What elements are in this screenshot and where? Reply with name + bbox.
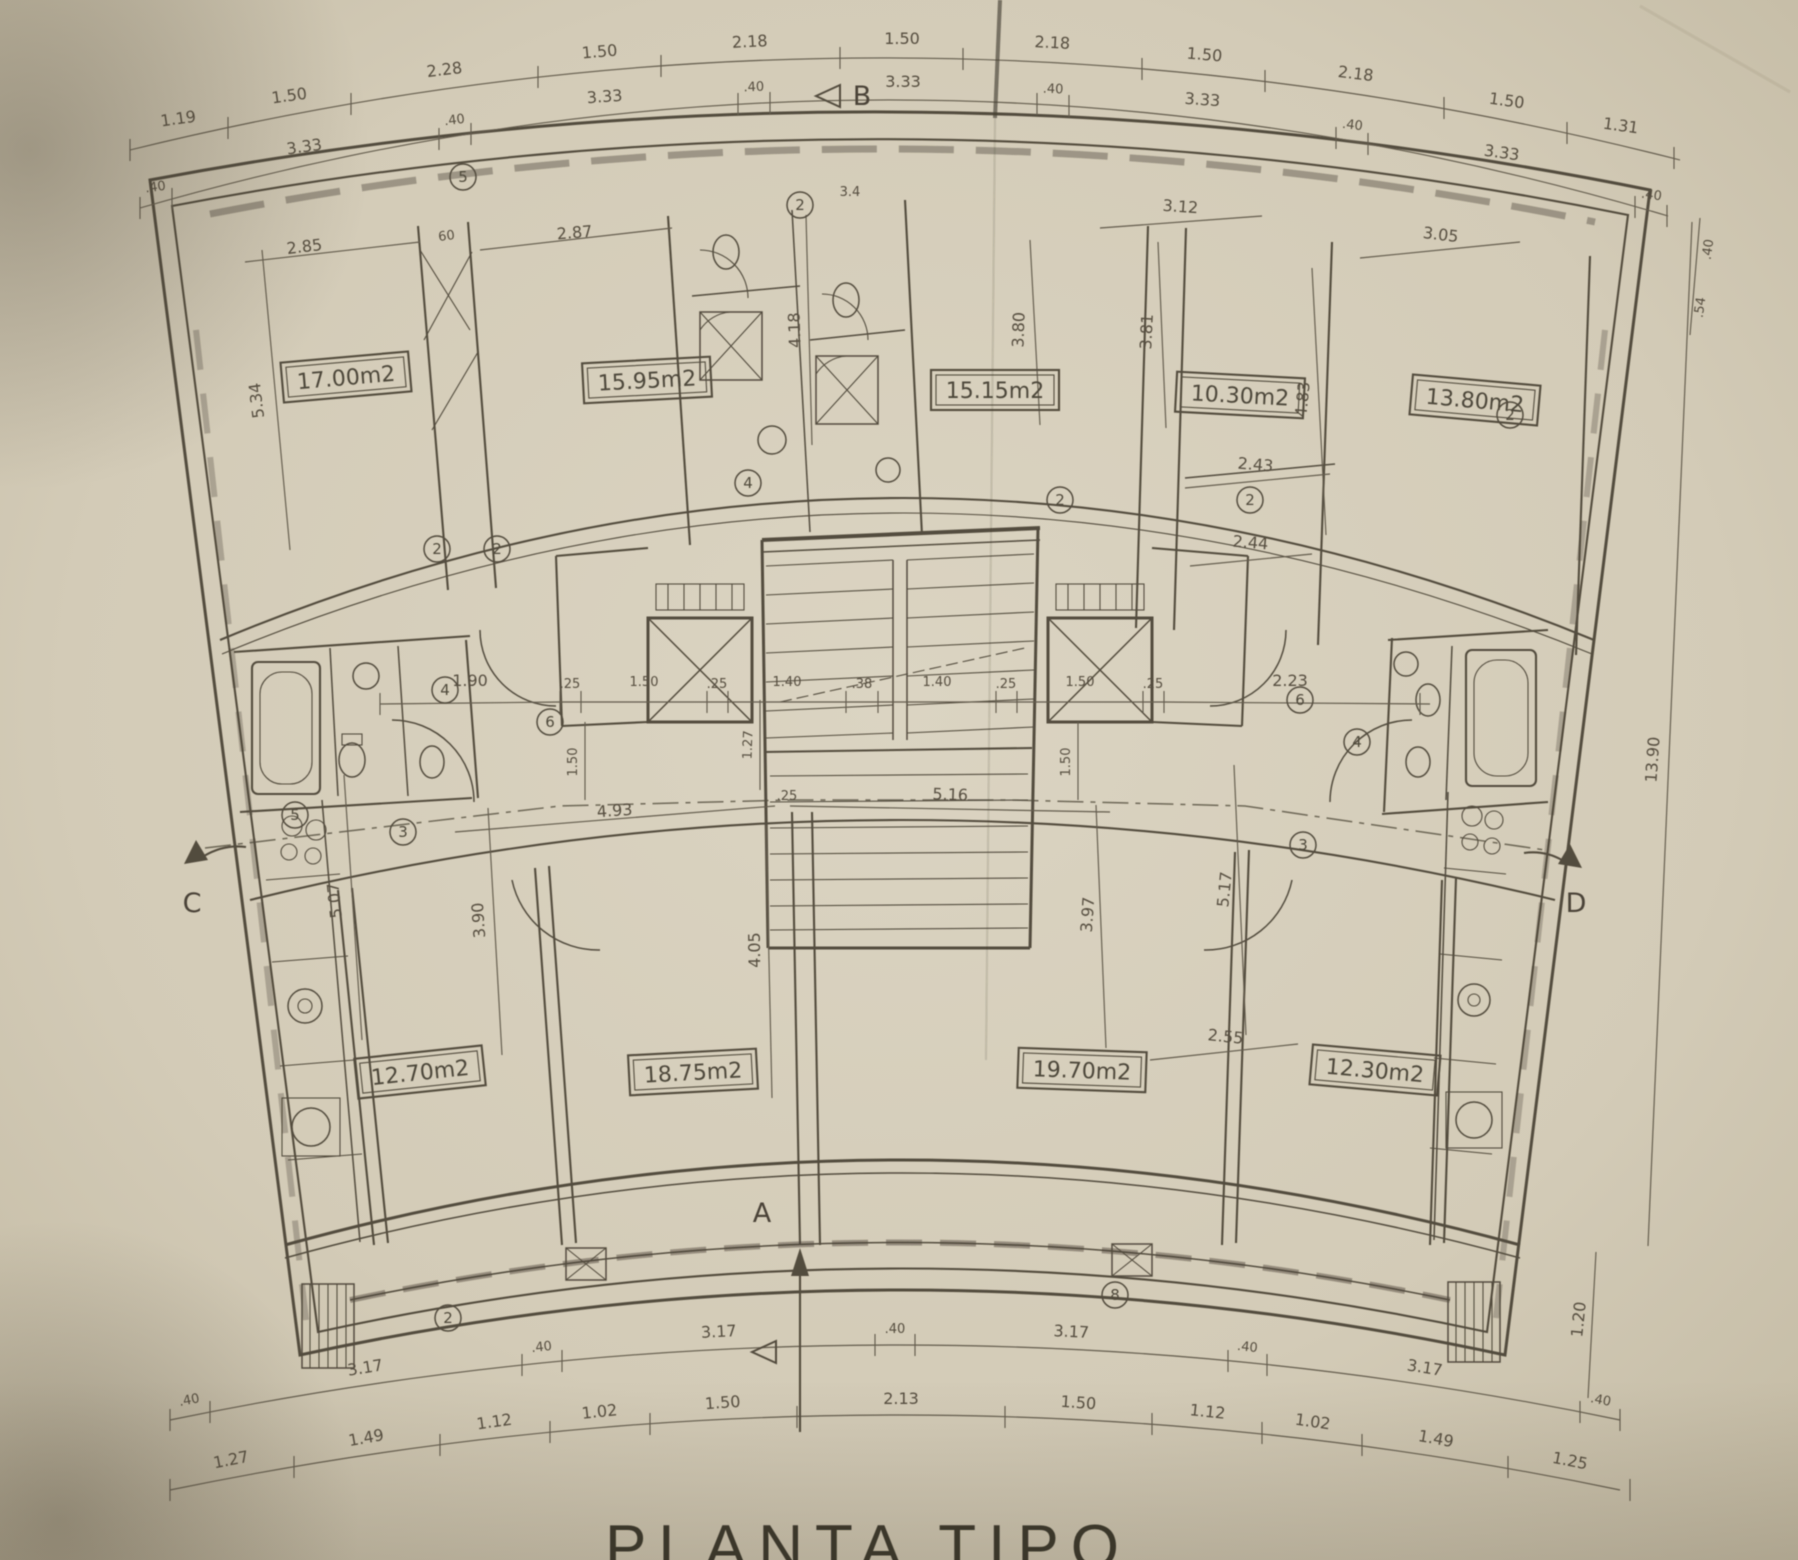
dim-label: 1.20 [1567,1301,1590,1338]
dim-label: 2.43 [1237,454,1274,476]
svg-text:4: 4 [743,474,753,492]
svg-text:2: 2 [1055,491,1065,509]
dim-label: 3.33 [1184,89,1221,110]
dim-label: 3.90 [468,902,489,939]
dim-label: 4.18 [784,312,804,348]
dim-label: 5.17 [1213,871,1236,908]
svg-text:2: 2 [432,540,442,558]
svg-text:5: 5 [290,806,300,824]
dim-label: 1.50 [1066,675,1095,690]
dim-label: 5.07 [323,882,346,919]
room-area-text: 19.70m2 [1032,1057,1131,1085]
dim-label: 3.33 [586,86,623,107]
dim-label: 1.50 [884,29,920,48]
axis-letter-a: A [753,1198,772,1229]
svg-text:6: 6 [545,713,555,731]
dim-label: .40 [531,1339,553,1356]
dim-label: 60 [437,228,455,245]
dim-label: .40 [1700,238,1718,261]
room-area-text: 18.75m2 [643,1058,743,1088]
scanned-floor-plan: 1.19 1.50 2.28 1.50 2.18 1.50 2.18 1.50 … [0,0,1798,1560]
dim-label: 2.87 [556,222,593,244]
dim-label: 2.44 [1232,532,1269,554]
svg-text:4: 4 [440,681,450,699]
svg-text:2: 2 [492,540,502,558]
dim-label: 3.33 [885,72,921,91]
dim-label: 1.50 [1186,44,1223,66]
room-area-text: 15.95m2 [597,366,697,396]
axis-letter-b: B [853,81,872,112]
dim-label: 2.13 [883,1389,919,1408]
dim-label: .25 [996,677,1017,692]
dim-label: 3.17 [1053,1321,1090,1342]
dim-label: 4.93 [596,800,633,821]
svg-text:5: 5 [458,168,468,186]
dim-label: 3.4 [840,185,861,200]
dim-label: 3.81 [1136,313,1157,350]
dim-label: 5.16 [932,784,968,804]
dim-label: .40 [1236,1339,1258,1356]
dim-label: .40 [443,112,465,129]
dim-label: .25 [1143,677,1164,692]
svg-text:3: 3 [1298,836,1308,854]
dim-label: 1.50 [581,41,618,63]
svg-text:2: 2 [1505,406,1515,424]
svg-text:8: 8 [1110,1286,1120,1304]
axis-letter-d: D [1566,888,1587,919]
floor-plan-canvas: 1.19 1.50 2.28 1.50 2.18 1.50 2.18 1.50 … [0,0,1798,1560]
dim-label: 1.27 [741,730,757,759]
dim-label: .40 [144,179,167,197]
dim-label: 3.97 [1077,896,1098,933]
dim-label: 1.02 [581,1400,618,1423]
dim-label: 1.50 [630,675,659,690]
dim-label: .38 [852,677,873,692]
dim-label: .40 [1043,82,1064,98]
svg-text:3: 3 [398,823,408,841]
svg-text:2: 2 [795,196,805,214]
dim-label: 1.50 [1060,1392,1097,1413]
dim-label: 1.50 [704,1392,741,1413]
dim-label: .25 [560,677,581,692]
svg-text:2: 2 [1245,491,1255,509]
dim-label: 1.50 [1059,748,1074,777]
dim-label: .25 [777,789,798,804]
dim-label: .54 [1692,296,1710,319]
dim-label: 2.55 [1207,1025,1244,1048]
dim-label: 13.90 [1641,736,1663,783]
dim-label: 4.05 [745,932,765,968]
dim-label: .40 [743,80,764,96]
dim-label: 1.40 [773,675,802,690]
svg-text:2: 2 [443,1309,453,1327]
dim-label: 1.50 [566,748,581,777]
dim-label: 2.18 [1034,32,1071,53]
dim-label: .40 [885,1322,906,1337]
dim-label: 2.18 [731,31,768,52]
dim-label: .40 [1640,187,1663,205]
svg-text:4: 4 [1352,733,1362,751]
dim-label: 3.12 [1162,196,1199,217]
dim-label: 3.17 [700,1321,737,1342]
dim-label: .40 [1341,117,1363,134]
room-area-text: 15.15m2 [946,379,1044,404]
axis-letter-c: C [183,888,202,919]
dim-label: .25 [707,677,728,692]
svg-text:6: 6 [1295,691,1305,709]
dim-label: 1.40 [923,675,952,690]
room-area-text: 10.30m2 [1190,381,1290,411]
dim-label: 3.80 [1008,312,1028,348]
drawing-title: PLANTA TIPO [605,1513,1131,1560]
dim-label: 1.12 [1189,1400,1226,1423]
